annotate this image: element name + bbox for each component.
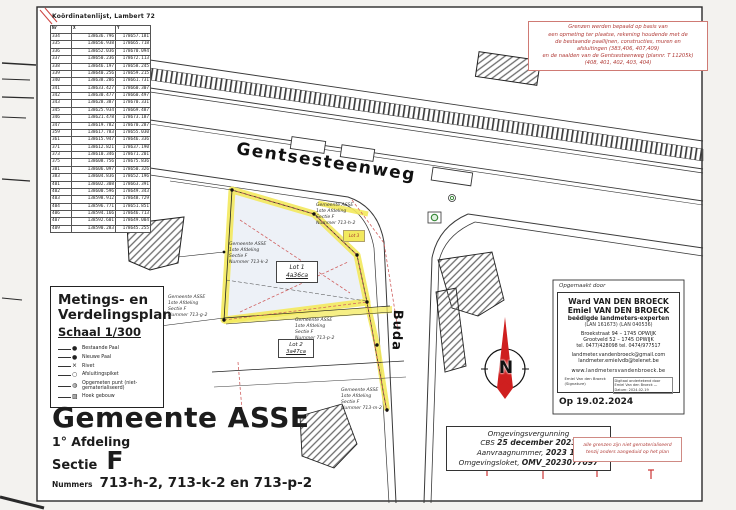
col-y: Y [116,26,151,34]
coord-row: 340 138638.286 178661.731 [51,78,151,85]
signature-name: Emiel Van den Broeck (Signature) [565,377,609,395]
coord-row: 375 138608.756 178675.836 [51,159,151,166]
coord-y: 178669.487 [116,107,151,114]
legend-item: ⨯ Rivet [58,363,158,369]
legend-item: ● Bestaande Paal [58,346,158,352]
survey-plan-sheet: Koördinatenlijst, Lambert 72 Nr X Y 334 … [0,0,736,510]
coord-nr: 406 [51,211,72,218]
surveyor-website: www.landmetersvandenbroeck.be [558,368,679,374]
surveyor-lan: (LAN 161673) (LAN 040536) [558,323,679,328]
coord-x: 138598.912 [72,196,116,203]
legend-item: ● Nieuwe Paal [58,355,158,361]
note-line: (408, 401, 402, 403, 404) [529,60,707,67]
coord-row: 402 138600.596 178649.343 [51,188,151,195]
legend-symbol-icon: ● [58,355,82,361]
coordinate-table-title: Koördinatenlijst, Lambert 72 [52,13,155,20]
coord-y: 178652.196 [116,174,151,181]
coord-y: 178646.336 [116,137,151,144]
coord-nr: 340 [51,78,72,85]
coord-x: 138594.166 [72,211,116,218]
coord-nr: 341 [51,85,72,92]
coord-x: 138608.756 [72,159,116,166]
coord-y: 178651.851 [116,203,151,210]
coord-row: 338 138646.197 178658.245 [51,63,151,70]
surveyor-email-1: landmeter.vandenbroeck@gmail.com [558,352,679,359]
coord-x: 138621.478 [72,115,116,122]
coord-row: 341 138633.427 178660.307 [51,85,151,92]
coord-row: 342 138630.477 178660.497 [51,93,151,100]
coord-nr: 381 [51,166,72,173]
coord-x: 138656.938 [72,41,116,48]
coord-nr: 342 [51,93,72,100]
coord-y: 178650.326 [116,166,151,173]
legend-label: Afsluitingspiket [82,372,119,378]
plan-date: Op 19.02.2024 [559,397,633,407]
note-line: afsluitingen (383,406, 407,409) [529,46,707,53]
coord-y: 178673.187 [116,115,151,122]
legend-label: Rivet [82,364,94,370]
note-line: en de naalden van de Gentsesteenweg (pla… [529,53,707,60]
coord-y: 178675.836 [116,159,151,166]
municipality-name: Gemeente ASSE [52,403,312,432]
coord-row: 381 138606.097 178650.326 [51,166,151,173]
legend-symbol-icon: ▨ [58,394,82,400]
parcel-label: Gemeente ASSE1ste Afdeling Sectie FNumme… [341,388,382,412]
coord-nr: 402 [51,188,72,195]
legend-symbol-icon: ⨯ [58,363,82,369]
coord-y: 178670.094 [116,48,151,55]
coord-nr: 404 [51,203,72,210]
coord-y: 178655.030 [116,129,151,136]
coord-y: 178672.113 [116,56,151,63]
coord-x: 138638.286 [72,78,116,85]
coord-nr: 338 [51,63,72,70]
compass-north-letter: N [496,358,516,378]
coord-x: 138590.283 [72,225,116,232]
lot3-label-box: Lot 3 [343,230,365,242]
coord-y: 178670.331 [116,100,151,107]
coord-y: 178660.497 [116,93,151,100]
municipality-block: Gemeente ASSE 1° Afdeling Sectie F Numme… [52,403,312,491]
coord-y: 178649.004 [116,218,151,225]
street-label-buda: Buda [389,309,405,351]
coord-y: 178658.245 [116,63,151,70]
coord-nr: 359 [51,129,72,136]
digital-signature-stamp: Digitaal ondertekend door Emiel Van den … [613,377,673,395]
note-line: de bestaande paallijnen, constructies, m… [529,39,707,46]
coord-row: 361 138615.947 178646.336 [51,137,151,144]
plan-title-line1: Metings- en [58,293,158,308]
municipality-afdeling: 1° Afdeling [52,434,312,449]
coord-row: 347 138619.782 178670.287 [51,122,151,129]
legend: ● Bestaande Paal ● Nieuwe Paal ⨯ Rivet ○… [58,346,158,400]
note-line: een opmeting ter plaatse, rekening houde… [529,32,707,39]
legend-item: ◍ Opgemeten punt (niet-gematerialiseerd) [58,381,158,392]
coord-x: 138628.387 [72,100,116,107]
coord-x: 138650.236 [72,56,116,63]
coord-y: 178670.287 [116,122,151,129]
coord-y: 178648.729 [116,196,151,203]
coord-x: 138596.771 [72,203,116,210]
coord-y: 178663.391 [116,181,151,188]
coord-row: 401 138602.308 178663.391 [51,181,151,188]
coord-x: 138652.036 [72,48,116,55]
coord-x: 138612.821 [72,144,116,151]
coord-x: 138633.427 [72,85,116,92]
note-line: tenzij anders aangeduid op het plan [574,450,681,456]
parcel-label: Gemeente ASSE1ste Afdeling Sectie FNumme… [295,318,334,342]
coord-nr: 343 [51,100,72,107]
coord-y: 178665.718 [116,41,151,48]
surveyor-title: beëdigde landmeters-experten [558,316,679,322]
coord-nr: 371 [51,144,72,151]
plan-scale: Schaal 1/300 [58,325,158,339]
parcel-label: Gemeente ASSE1ste Afdeling Sectie FNumme… [229,242,268,266]
coord-y: 178646.713 [116,211,151,218]
coord-header-row: Nr X Y [51,26,151,34]
coord-nr: 401 [51,181,72,188]
legend-symbol-icon: ○ [58,372,82,378]
surveyor-email-2: landmeter.emielvdb@telenet.be [558,358,679,365]
coord-row: 404 138596.771 178651.851 [51,203,151,210]
boundaries-note: alle grenzen zijn niet gematerialiseerdt… [573,437,682,462]
coord-nr: 347 [51,122,72,129]
coord-nr: 407 [51,218,72,225]
coord-x: 138606.097 [72,166,116,173]
coord-row: 409 138590.283 178645.255 [51,225,151,232]
coord-y: 178657.181 [116,34,151,41]
coord-row: 359 138617.783 178655.030 [51,129,151,136]
lot2-name: Lot 2 [279,342,313,349]
coord-x: 138610.346 [72,152,116,159]
col-x: X [72,26,116,34]
coord-x: 138625.934 [72,107,116,114]
surveyor-address-2: Grootveld 52 – 1745 OPWIJK [558,337,679,344]
coord-x: 138592.601 [72,218,116,225]
coord-nr: 409 [51,225,72,232]
coord-nr: 339 [51,70,72,77]
coord-y: 178671.201 [116,152,151,159]
coord-x: 138636.796 [72,34,116,41]
plan-title-line2: Verdelingsplan [58,308,158,323]
coord-nr: 337 [51,56,72,63]
coord-x: 138617.783 [72,129,116,136]
coord-nr: 373 [51,152,72,159]
legend-item: ○ Afsluitingspiket [58,372,158,378]
col-nr: Nr [51,26,72,34]
coord-y: 178645.255 [116,225,151,232]
legend-symbol-icon: ◍ [58,383,82,389]
coord-row: 403 138598.912 178648.729 [51,196,151,203]
coord-row: 335 138656.938 178665.718 [51,41,151,48]
legend-symbol-icon: ● [58,346,82,352]
coord-row: 373 138610.346 178671.201 [51,152,151,159]
coord-row: 371 138612.821 178637.190 [51,144,151,151]
permit-cbs-date: 25 december 2023 [497,438,576,447]
coord-y: 178649.343 [116,188,151,195]
nummers-label: Nummers [52,480,93,489]
coord-row: 339 138640.256 178659.215 [51,70,151,77]
coordinate-table: Nr X Y 334 138636.796 178657.181 335 13 [50,25,151,233]
coord-row: 343 138628.387 178670.331 [51,100,151,107]
coord-row: 334 138636.796 178657.181 [51,34,151,41]
prepared-by-label: Opgemaakt door [559,283,605,289]
coord-nr: 361 [51,137,72,144]
coord-x: 138630.477 [72,93,116,100]
coord-row: 406 138594.166 178646.713 [51,211,151,218]
surveyor-name-2: Emiel VAN DEN BROECK [558,306,679,315]
legend-label: Nieuwe Paal [82,355,111,361]
lot2-area: 3a47ca [279,349,313,356]
note-line: Grenzen werden bepaald op basis van [529,24,707,31]
legend-label: Bestaande Paal [82,346,119,352]
sectie-value: F [106,450,123,473]
coord-row: 337 138650.236 178672.113 [51,56,151,63]
permit-loket-label: Omgevingsloket, [459,458,520,467]
coord-row: 336 138652.036 178670.094 [51,48,151,55]
coord-row: 407 138592.601 178649.004 [51,218,151,225]
coord-row: 346 138621.478 178673.187 [51,115,151,122]
coord-y: 178659.215 [116,70,151,77]
coord-x: 138602.308 [72,181,116,188]
coord-row: 345 138625.934 178669.487 [51,107,151,114]
coord-x: 138640.256 [72,70,116,77]
lot1-name: Lot 1 [277,264,317,272]
legend-item: ▨ Hoek gebouw [58,394,158,400]
coord-nr: 375 [51,159,72,166]
lot1-area: 4a36ca [277,272,317,280]
coord-nr: 345 [51,107,72,114]
coord-x: 138604.836 [72,174,116,181]
coord-row: 383 138604.836 178652.196 [51,174,151,181]
permit-cbs-label: CBS [480,438,495,447]
legend-label: Opgemeten punt (niet-gematerialiseerd) [82,381,158,392]
coord-nr: 334 [51,34,72,41]
coord-x: 138619.782 [72,122,116,129]
sectie-label: Sectie [52,458,97,473]
permit-request-label: Aanvraagnummer, [477,448,544,457]
coord-nr: 403 [51,196,72,203]
surveyor-box: Ward VAN DEN BROECK Emiel VAN DEN BROECK… [557,292,680,393]
surveyor-phones: tel. 0477/428098 tel. 0474/977517 [558,344,679,349]
surveyor-name-1: Ward VAN DEN BROECK [558,297,679,306]
parcel-label: Gemeente ASSE1ste Afdeling Sectie FNumme… [316,203,355,227]
boundary-determination-note: Grenzen werden bepaald op basis vaneen o… [528,21,708,71]
legend-label: Hoek gebouw [82,394,115,400]
coord-x: 138615.947 [72,137,116,144]
parcel-label: Gemeente ASSE1ste Afdeling Sectie FNumme… [168,295,207,319]
coord-nr: 336 [51,48,72,55]
coord-y: 178660.307 [116,85,151,92]
coord-y: 178661.731 [116,78,151,85]
plan-title-box: Metings- en Verdelingsplan Schaal 1/300 … [50,286,164,408]
coord-x: 138646.197 [72,63,116,70]
coord-x: 138600.596 [72,188,116,195]
coord-nr: 383 [51,174,72,181]
coord-nr: 346 [51,115,72,122]
coord-y: 178637.190 [116,144,151,151]
nummers-value: 713-h-2, 713-k-2 en 713-p-2 [100,475,313,491]
lot1-label-box: Lot 1 4a36ca [276,261,318,283]
lot2-label-box: Lot 2 3a47ca [278,339,314,358]
coord-nr: 335 [51,41,72,48]
